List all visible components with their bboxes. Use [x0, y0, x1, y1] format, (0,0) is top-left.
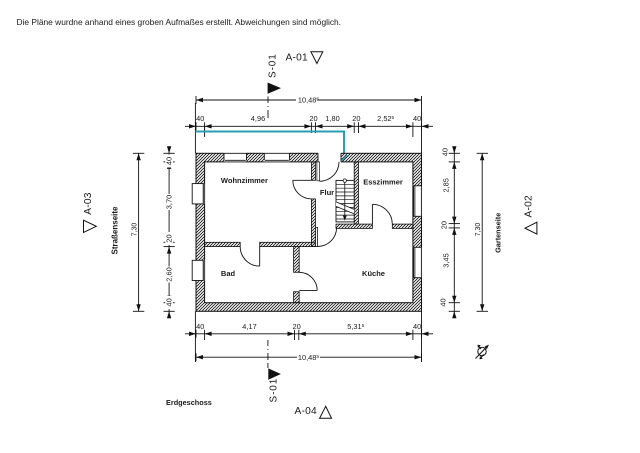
svg-text:20: 20	[352, 114, 360, 123]
svg-text:1,80: 1,80	[325, 114, 339, 123]
svg-text:4,17: 4,17	[242, 322, 256, 331]
svg-text:Esszimmer: Esszimmer	[363, 177, 403, 186]
svg-text:3,70: 3,70	[165, 195, 174, 209]
svg-text:40: 40	[196, 322, 204, 331]
svg-text:40: 40	[413, 114, 421, 123]
svg-text:A-01: A-01	[286, 52, 308, 63]
svg-text:Wohnzimmer: Wohnzimmer	[221, 176, 268, 185]
svg-text:20: 20	[309, 114, 317, 123]
svg-text:Gartenseite: Gartenseite	[494, 213, 503, 253]
svg-text:3,45: 3,45	[442, 253, 451, 267]
svg-text:Küche: Küche	[362, 269, 385, 278]
svg-text:A-03: A-03	[83, 192, 94, 214]
svg-text:2,60: 2,60	[165, 267, 174, 281]
svg-text:40: 40	[165, 157, 174, 165]
svg-text:Die Pläne wurdne anhand eines: Die Pläne wurdne anhand eines groben Auf…	[17, 17, 342, 27]
svg-text:7,30: 7,30	[475, 223, 482, 237]
svg-text:Flur: Flur	[320, 188, 334, 197]
svg-text:S-01: S-01	[268, 53, 279, 78]
svg-text:40: 40	[413, 322, 421, 331]
svg-text:A-04: A-04	[295, 406, 317, 417]
svg-text:2,85: 2,85	[442, 178, 451, 192]
svg-text:Straßenseite: Straßenseite	[111, 206, 120, 255]
svg-text:10,485: 10,485	[298, 96, 320, 105]
svg-text:20: 20	[440, 221, 449, 229]
svg-text:40: 40	[440, 148, 449, 156]
svg-text:4,96: 4,96	[251, 114, 265, 123]
svg-text:40: 40	[439, 298, 448, 306]
svg-text:20: 20	[292, 322, 300, 331]
svg-text:Erdgeschoss: Erdgeschoss	[166, 398, 212, 407]
svg-text:20: 20	[165, 234, 174, 242]
svg-text:A-02: A-02	[524, 195, 535, 217]
svg-text:40: 40	[196, 114, 204, 123]
svg-text:40: 40	[165, 298, 174, 306]
svg-text:Bad: Bad	[221, 269, 236, 278]
svg-text:10,485: 10,485	[298, 353, 320, 362]
svg-text:7,30: 7,30	[132, 223, 139, 237]
svg-text:S-01: S-01	[269, 378, 280, 403]
